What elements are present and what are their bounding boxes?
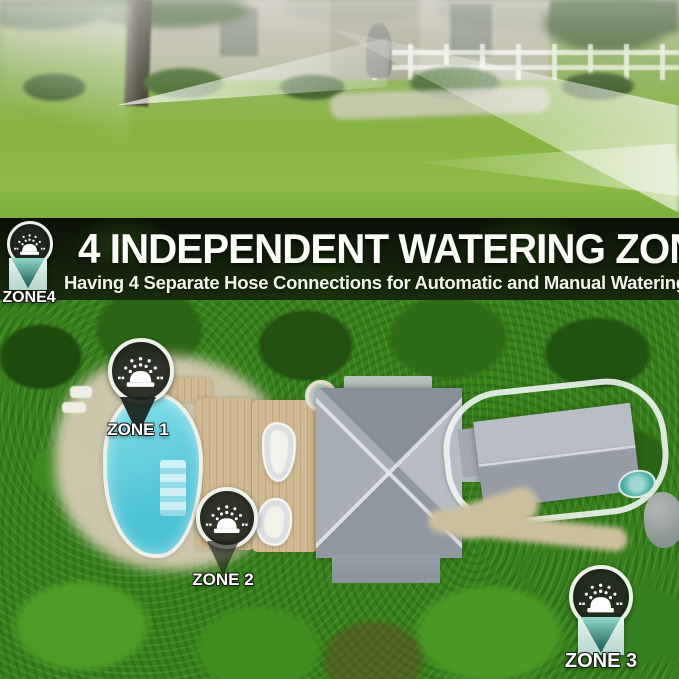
- lounge-chair: [62, 402, 86, 413]
- lounge-chair: [70, 386, 92, 398]
- teal-arrow-icon: [9, 258, 47, 290]
- sprinkler-icon: [196, 487, 258, 549]
- spa-tub: [256, 498, 292, 546]
- zone2-label: ZONE 2: [183, 570, 263, 590]
- main-roof-extension: [332, 555, 440, 583]
- zone3-label: ZONE 3: [563, 650, 639, 673]
- zone4-label: ZONE4: [0, 289, 60, 307]
- lawn-photo: [0, 0, 679, 218]
- sprinkler-icon: [108, 338, 174, 404]
- swimming-pool: [103, 392, 203, 558]
- product-infographic: 4 INDEPENDENT WATERING ZONE Having 4 Sep…: [0, 0, 679, 679]
- zone4-pointer: [9, 258, 47, 290]
- boulder: [644, 492, 679, 548]
- page-subtitle: Having 4 Separate Hose Connections for A…: [64, 272, 679, 294]
- page-title: 4 INDEPENDENT WATERING ZONE: [78, 225, 654, 273]
- pool-steps: [160, 460, 186, 516]
- zone1-label: ZONE 1: [95, 420, 181, 440]
- spray-haze: [0, 0, 130, 170]
